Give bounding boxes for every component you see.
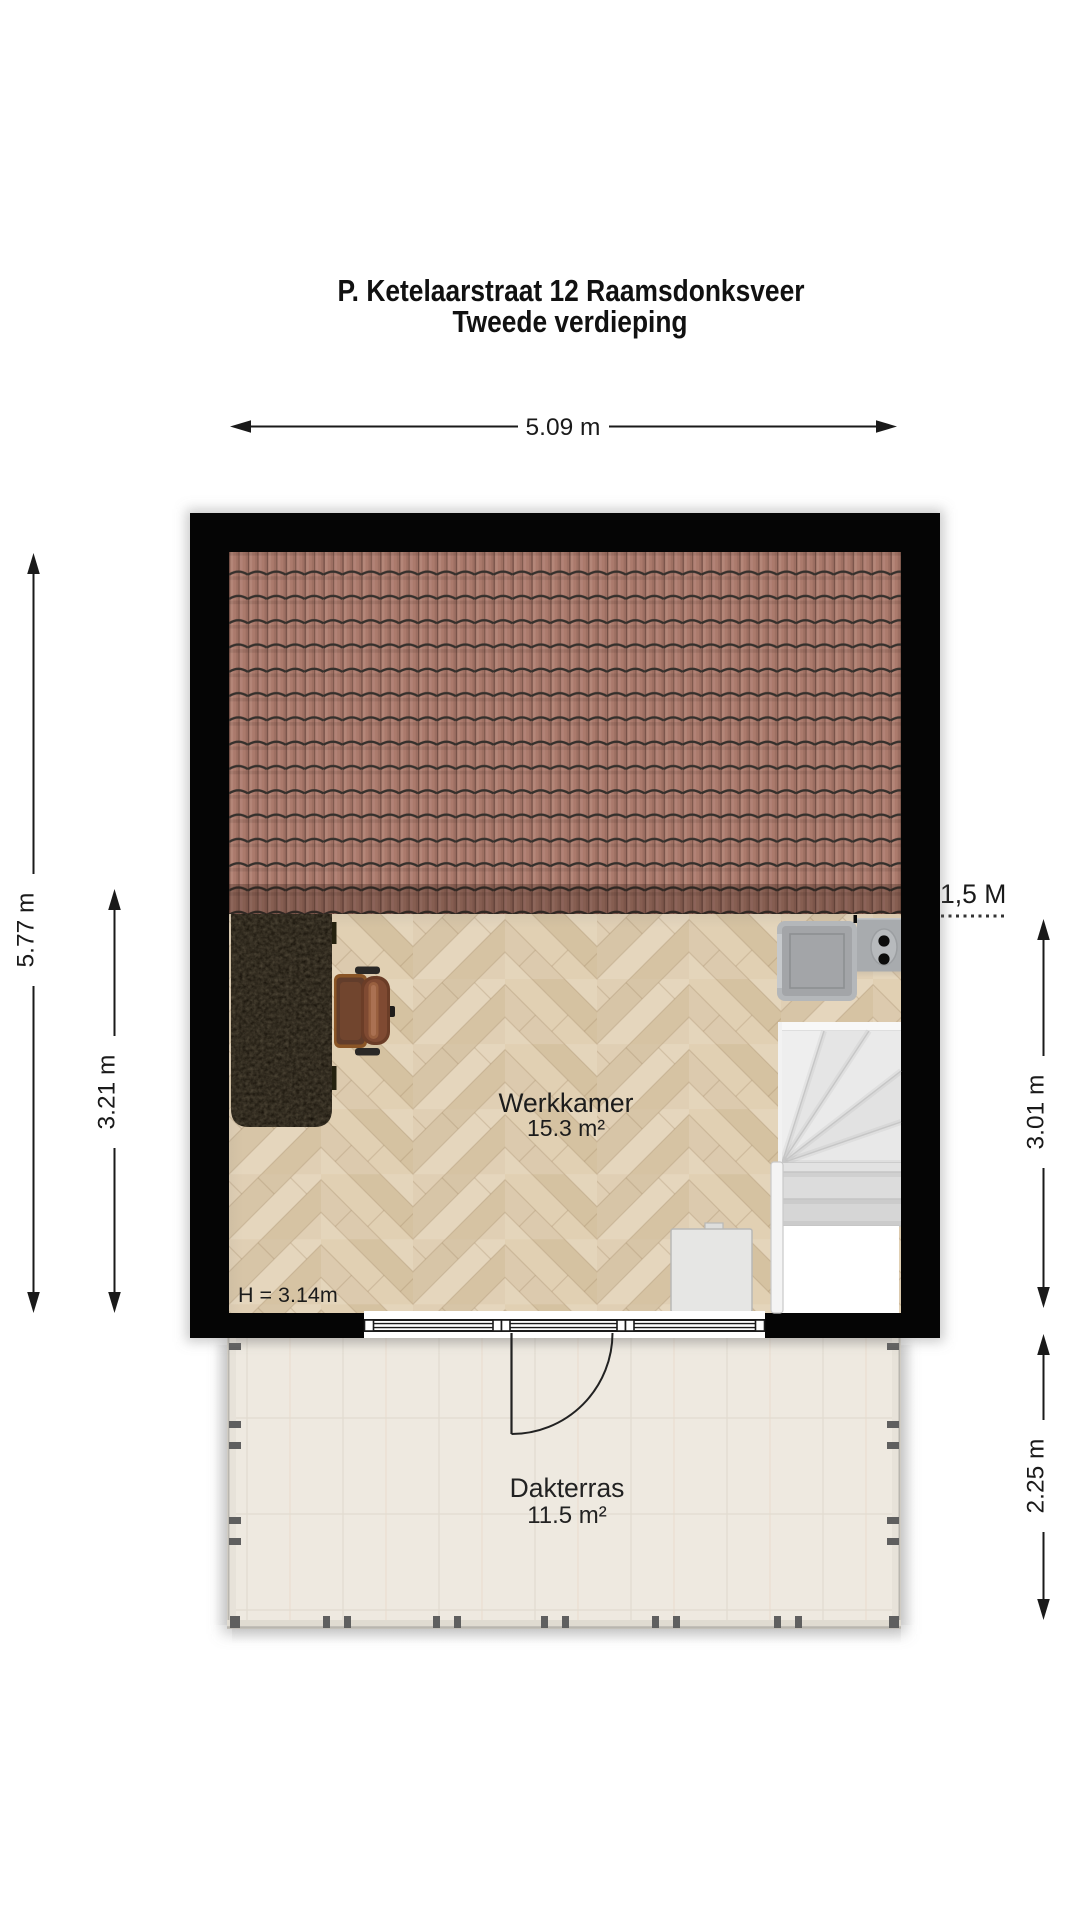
svg-text:11.5 m²: 11.5 m²: [527, 1502, 607, 1529]
svg-text:1,5 M: 1,5 M: [940, 879, 1006, 909]
svg-text:15.3 m²: 15.3 m²: [527, 1115, 605, 1141]
svg-text:Tweede verdieping: Tweede verdieping: [453, 304, 688, 339]
svg-text:Dakterras: Dakterras: [510, 1473, 625, 1503]
svg-text:P. Ketelaarstraat 12 Raamsdonk: P. Ketelaarstraat 12 Raamsdonksveer: [338, 273, 805, 308]
svg-text:H = 3.14m: H = 3.14m: [238, 1283, 338, 1307]
svg-text:3.21 m: 3.21 m: [94, 1055, 121, 1130]
svg-text:5.09 m: 5.09 m: [526, 414, 601, 441]
svg-text:2.25 m: 2.25 m: [1023, 1439, 1050, 1514]
svg-text:Werkkamer: Werkkamer: [499, 1088, 634, 1118]
svg-text:5.77 m: 5.77 m: [13, 893, 40, 968]
svg-text:3.01 m: 3.01 m: [1023, 1075, 1050, 1150]
